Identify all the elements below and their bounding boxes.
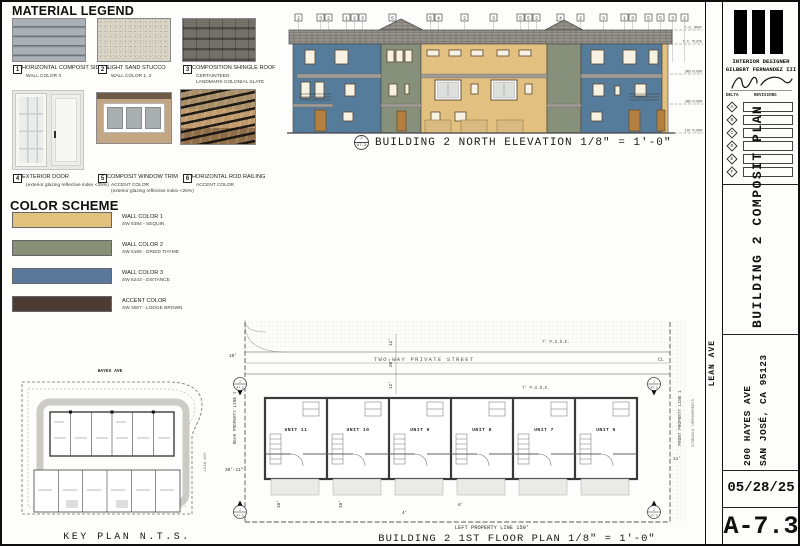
stucco-swatch-image <box>97 18 171 62</box>
color-label-wall1: WALL COLOR 1SW 6394 - SEQUIN <box>122 214 164 228</box>
elevation-level-lines: T.O. ROOFT.O. PLATE3RD FLOOR2ND FLOOR1ST… <box>670 26 703 134</box>
keyplan-street-right: LEAN AVE <box>204 452 208 472</box>
legend-num-2: 2 <box>98 65 107 74</box>
svg-text:1: 1 <box>623 15 626 21</box>
keyplan-building-1 <box>34 470 180 512</box>
front-property-label: FRONT PROPERTY LINE 1 <box>678 390 683 446</box>
svg-text:5: 5 <box>519 15 522 21</box>
svg-text:3: 3 <box>631 15 634 21</box>
svg-text:2: 2 <box>239 509 241 512</box>
svg-text:2: 2 <box>327 15 330 21</box>
svg-text:12': 12' <box>389 338 394 346</box>
svg-text:2: 2 <box>239 381 241 384</box>
svg-text:A7.3: A7.3 <box>236 387 243 390</box>
legend-num-6: 6 <box>183 174 192 183</box>
delta-header: DELTA <box>726 94 739 98</box>
floor-plan-title: BUILDING 2 1ST FLOOR PLAN 1/8" = 1'-0" <box>332 533 702 545</box>
pude-label-bottom: 7' P.U.D.E. <box>522 386 550 391</box>
svg-text:3RD FLOOR: 3RD FLOOR <box>685 70 702 74</box>
svg-text:4': 4' <box>402 511 407 516</box>
svg-text:5: 5 <box>647 15 650 21</box>
roof-gable-right <box>545 20 583 30</box>
svg-text:UNIT 6: UNIT 6 <box>596 427 616 433</box>
lean-ave-strip: LEAN AVE <box>705 2 723 544</box>
svg-text:6': 6' <box>458 503 463 508</box>
first-floor-plan-drawing: TWO-WAY PRIVATE STREET CL 7' P.U.D.E. 7'… <box>224 318 708 538</box>
svg-text:10': 10' <box>339 500 344 508</box>
svg-text:2: 2 <box>535 15 538 21</box>
svg-text:5: 5 <box>527 15 530 21</box>
svg-text:2ND FLOOR: 2ND FLOOR <box>685 100 702 104</box>
svg-text:2: 2 <box>297 15 300 21</box>
north-elevation-drawing: 23212355423552423135532 T.O. ROOFT.O. PL… <box>285 10 705 140</box>
svg-text:UNIT 8: UNIT 8 <box>472 427 492 433</box>
svg-text:T.O. PLATE: T.O. PLATE <box>683 40 702 44</box>
svg-text:UNIT 11: UNIT 11 <box>285 427 308 433</box>
svg-text:UNIT 9: UNIT 9 <box>410 427 430 433</box>
section-marker: 2A7.3 <box>648 378 661 396</box>
svg-text:2: 2 <box>653 509 655 512</box>
color-label-wall3: WALL COLOR 3SW 6243 - DISTANCE <box>122 270 170 284</box>
glass-door-image <box>16 94 46 166</box>
shingle-swatch-image <box>182 18 256 62</box>
svg-text:12': 12' <box>389 381 394 389</box>
legend-item-4: 4EXTERIOR DOOR (exterior glazing reflect… <box>13 174 109 189</box>
elevation-title-row: 2A7.3 BUILDING 2 NORTH ELEVATION 1/8" = … <box>354 135 671 150</box>
firm-logo <box>734 10 783 54</box>
color-label-wall2: WALL COLOR 2SW 6186 - DRIED THYME <box>122 242 179 256</box>
svg-text:4: 4 <box>559 15 562 21</box>
svg-text:20': 20' <box>389 359 394 367</box>
elevation-title: BUILDING 2 NORTH ELEVATION 1/8" = 1'-0" <box>375 137 671 149</box>
delta-marker: A <box>726 101 737 112</box>
legend-num-1: 1 <box>13 65 22 74</box>
legend-item-5: 5COMPOSIT WINDOW TRIM ACCENT COLOR (exte… <box>98 174 194 195</box>
sheet-title-vertical: BUILDING 2 COMPOSIT PLAN <box>750 192 765 328</box>
roof-band <box>289 30 672 44</box>
svg-text:10': 10' <box>229 354 237 359</box>
svg-text:5: 5 <box>429 15 432 21</box>
svg-text:A7.3: A7.3 <box>236 515 243 518</box>
sidewalk-label: SIDEWALK IMPROVEMENTS <box>692 398 696 447</box>
svg-text:UNIT 7: UNIT 7 <box>534 427 554 433</box>
window-pane <box>126 107 142 129</box>
elevation-detail-marker: 2A7.3 <box>354 135 369 150</box>
revisions-header: REVISIONS <box>754 94 777 98</box>
svg-text:1ST FLOOR: 1ST FLOOR <box>685 129 702 133</box>
sheet-number: A-7.3 <box>723 512 799 541</box>
svg-text:2: 2 <box>653 381 655 384</box>
svg-text:11': 11' <box>673 457 681 462</box>
signature-image <box>728 74 794 92</box>
svg-text:A7.3: A7.3 <box>650 515 657 518</box>
siding-swatch-image <box>12 18 86 62</box>
svg-text:30'-11": 30'-11" <box>225 468 244 473</box>
key-plan-drawing: HAYES AVE LEAN AVE <box>6 362 220 530</box>
legend-num-5: 5 <box>98 174 107 183</box>
window-pane <box>145 107 161 129</box>
color-scheme-title: COLOR SCHEME <box>10 198 119 213</box>
svg-text:3: 3 <box>671 15 674 21</box>
svg-text:A7.3: A7.3 <box>650 387 657 390</box>
svg-text:T.O. ROOF: T.O. ROOF <box>685 26 702 30</box>
color-swatch-accent <box>12 296 112 312</box>
key-plan-title: KEY PLAN N.T.S. <box>52 532 202 543</box>
svg-text:UNIT 10: UNIT 10 <box>347 427 370 433</box>
legend-item-2: 2LIGHT SAND STUCCO WALL COLOR 1, 2 <box>98 65 166 80</box>
window-trim-swatch-image <box>96 92 172 144</box>
address-line2: SAN JOSÉ, CA 95123 <box>758 342 769 466</box>
color-swatch-wall3 <box>12 268 112 284</box>
patios <box>271 479 629 495</box>
material-legend-title: MATERIAL LEGEND <box>12 4 134 18</box>
delta-marker: D <box>726 140 737 151</box>
svg-text:2: 2 <box>353 15 356 21</box>
legend-item-6: 6HORIZONTAL ROD RAILING ACCENT COLOR <box>183 174 265 189</box>
delta-marker: F <box>726 166 737 177</box>
pude-label-top: 7' P.U.D.E. <box>542 340 570 345</box>
color-label-accent: ACCENT COLORSW 3007 - LODGE BROWN <box>122 298 183 312</box>
keyplan-street-top: HAYES AVE <box>98 368 123 374</box>
color-swatch-wall2 <box>12 240 112 256</box>
rear-property-label: REAR PROPERTY LINE 1 <box>233 391 238 444</box>
sheet-date: 05/28/25 <box>723 480 799 496</box>
firm-name: INTERIOR DESIGNER GILBERT FERNANDEZ III <box>723 58 799 73</box>
window-pane <box>107 107 123 129</box>
svg-text:2: 2 <box>463 15 466 21</box>
svg-text:2: 2 <box>683 15 686 21</box>
address-line1: 200 HAYES AVE <box>742 342 753 466</box>
svg-text:2: 2 <box>579 15 582 21</box>
svg-text:3: 3 <box>602 15 605 21</box>
delta-marker: C <box>726 127 737 138</box>
svg-text:5: 5 <box>659 15 662 21</box>
centerline-symbol: CL <box>658 357 664 363</box>
svg-text:3: 3 <box>319 15 322 21</box>
keyplan-building-2 <box>50 411 174 457</box>
legend-item-3: 3COMPOSITION SHINGLE ROOF CERTAINTEED LA… <box>183 65 276 86</box>
panel-door-image <box>51 94 81 166</box>
svg-text:4: 4 <box>437 15 440 21</box>
svg-text:10': 10' <box>277 500 282 508</box>
exterior-door-swatch-image <box>12 90 84 170</box>
svg-text:1: 1 <box>345 15 348 21</box>
legend-num-3: 3 <box>183 65 192 74</box>
drawing-sheet: MATERIAL LEGEND 1HORIZONTAL COMPOSIT SID… <box>0 0 800 546</box>
left-property-label: LEFT PROPERTY LINE 150' <box>455 525 529 531</box>
window-frame <box>103 103 165 133</box>
delta-marker: B <box>726 114 737 125</box>
delta-marker: E <box>726 153 737 164</box>
lean-ave-label: LEAN AVE <box>708 340 717 386</box>
svg-text:5: 5 <box>391 15 394 21</box>
svg-text:3: 3 <box>492 15 495 21</box>
roof-gable-left <box>379 19 423 30</box>
legend-num-4: 4 <box>13 174 22 183</box>
svg-text:3: 3 <box>361 15 364 21</box>
color-swatch-wall1 <box>12 212 112 228</box>
legend-item-1: 1HORIZONTAL COMPOSIT SIDING WALL COLOR 3 <box>13 65 110 80</box>
pude-zone <box>245 320 670 350</box>
rod-railing-swatch-image <box>180 89 256 145</box>
section-marker: 2A7.3 <box>648 501 661 519</box>
